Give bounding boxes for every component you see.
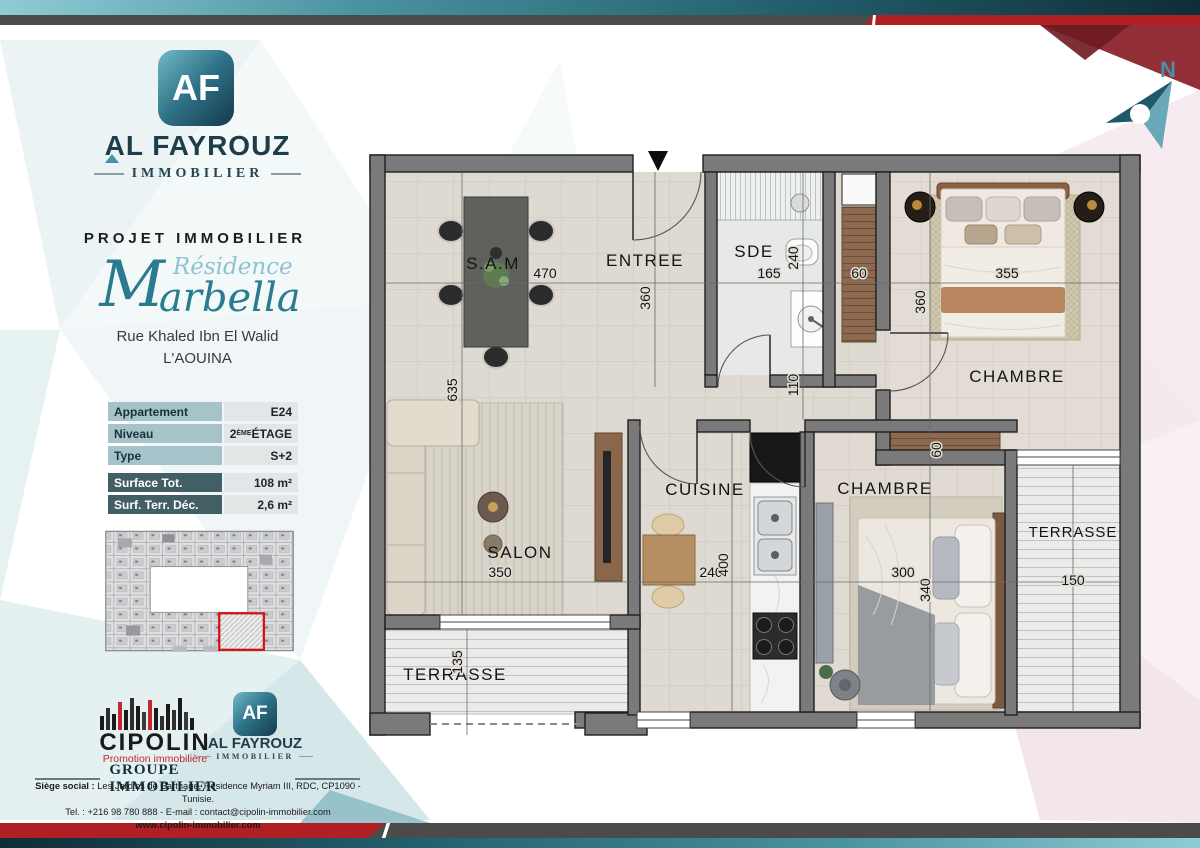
table-row: Type S+2: [108, 446, 298, 465]
divider-line: [271, 173, 301, 175]
terrasse-est-floor: [1017, 465, 1120, 712]
entry-arrow-icon: [648, 151, 668, 171]
shower-drain-icon: [791, 194, 809, 212]
room-label-chambre1: CHAMBRE: [969, 367, 1065, 386]
row-value: 2ÈME ÉTAGE: [224, 424, 298, 443]
north-arrow-pivot: [1130, 104, 1150, 124]
agency-subtitle: IMMOBILIER: [75, 166, 320, 182]
dim-terrasse-est: 150: [1061, 572, 1085, 588]
room-label-sde: SDE: [734, 242, 773, 261]
dim-sam-w: 470: [533, 265, 557, 281]
dim-salon-w: 350: [488, 564, 512, 580]
footer-contact-block: Siège social : Les Jardins de Carthage, …: [28, 780, 368, 832]
divider-line: [94, 173, 124, 175]
shower-icon: [717, 172, 823, 220]
footer-contact: Tel. : +216 98 780 888 - E-mail : contac…: [28, 806, 368, 819]
north-label: N: [1160, 57, 1176, 82]
top-accent-bar: [0, 15, 1200, 25]
address-city: L'AOUINA: [75, 348, 320, 370]
cipolin-name: CIPOLIN: [99, 729, 210, 756]
row-value: S+2: [224, 446, 298, 465]
row-label: Surf. Terr. Déc.: [108, 495, 222, 514]
row-label: Niveau: [108, 424, 222, 443]
room-label-chambre2: CHAMBRE: [837, 479, 933, 498]
alfayrouz-footer-logo-icon: AF: [233, 692, 277, 736]
alfayrouz-footer-name: AL FAYROUZ: [195, 735, 315, 752]
dim-chambre1-h: 360: [912, 290, 928, 314]
dim-closet-ch2: 60: [928, 442, 944, 458]
dim-chambre2-w: 300: [891, 564, 915, 580]
room-label-entree: ENTREE: [606, 251, 684, 270]
highlighted-apartment-unit: [219, 613, 264, 649]
room-label-sam: S.A.M: [466, 254, 520, 273]
agency-wordmark: AL FAYROUZ: [75, 130, 320, 162]
top-teal-bar: [0, 0, 1200, 15]
apartment-details-table: Appartement E24 Niveau 2ÈME ÉTAGE Type S…: [108, 402, 298, 514]
logo-monogram: AF: [172, 67, 220, 109]
desk-icon: [816, 503, 833, 663]
bedroom1-icons: [905, 183, 1104, 340]
table-row: Surf. Terr. Déc. 2,6 m²: [108, 495, 298, 514]
residence-initial: M: [99, 250, 165, 330]
alfayrouz-logo-icon: AF: [158, 50, 234, 126]
row-value: 2,6 m²: [224, 495, 298, 514]
project-address: Rue Khaled Ibn El Walid L'AOUINA: [75, 326, 320, 370]
residence-logo: M Résidence arbella: [95, 250, 305, 330]
dim-salon-h: 635: [444, 378, 460, 402]
row-label: Appartement: [108, 402, 222, 421]
footer-website[interactable]: www.cipolin-immobilier.com: [28, 819, 368, 832]
dim-chambre1-w: 355: [995, 265, 1019, 281]
room-label-terrasse-est: TERRASSE: [1029, 524, 1118, 541]
project-kicker: PROJET IMMOBILIER: [65, 230, 325, 247]
dim-chambre2-h: 340: [917, 578, 933, 602]
cipolin-skyline-icon: [100, 698, 194, 730]
dim-entree-h: 360: [637, 286, 653, 310]
floor-plan: S.A.M ENTREE SDE CHAMBRE CUISINE CHAMBRE…: [345, 145, 1145, 760]
row-value: E24: [224, 402, 298, 421]
north-arrow: N: [1100, 45, 1200, 155]
building-site-plan: [95, 516, 305, 666]
dim-cuisine-h: 400: [715, 553, 731, 577]
wordmark-accent-triangle: [105, 154, 119, 163]
row-label: Type: [108, 446, 222, 465]
dim-hall: 110: [785, 374, 801, 397]
row-value: 108 m²: [224, 473, 298, 492]
dim-sde-h: 240: [785, 246, 801, 270]
footer-address: Siège social : Les Jardins de Carthage, …: [28, 780, 368, 806]
table-row: Surface Tot. 108 m²: [108, 473, 298, 492]
dim-sde-w: 165: [757, 265, 781, 281]
fridge-icon: [750, 433, 800, 482]
bottom-teal-bar: [0, 838, 1200, 848]
address-street: Rue Khaled Ibn El Walid: [75, 326, 320, 348]
dim-closet-sde: 60: [851, 265, 867, 281]
room-label-salon: SALON: [487, 543, 552, 562]
agency-name: AL FAYROUZ: [105, 130, 291, 161]
alfayrouz-footer-sub: IMMOBILIER: [195, 752, 315, 761]
residence-name: arbella: [159, 280, 301, 316]
table-row: Niveau 2ÈME ÉTAGE: [108, 424, 298, 443]
table-row: Appartement E24: [108, 402, 298, 421]
row-label: Surface Tot.: [108, 473, 222, 492]
room-label-cuisine: CUISINE: [665, 480, 744, 499]
niche: [842, 174, 876, 205]
plant-icon: [819, 665, 833, 679]
dim-terrasse-sud: 135: [449, 650, 465, 674]
